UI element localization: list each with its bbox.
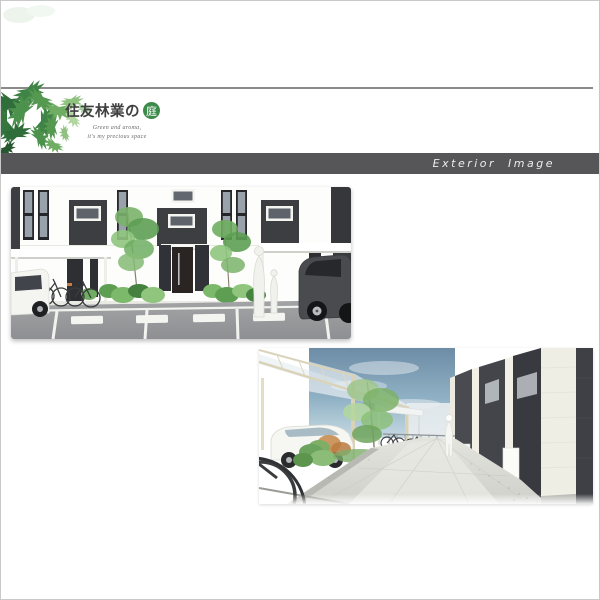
brand-badge: 庭	[143, 102, 160, 119]
rendering-front-elevation	[11, 187, 351, 339]
brochure-page: 住友林業の 庭 Green and aroma, it's my preciou…	[0, 0, 600, 600]
brand-logo: 住友林業の 庭 Green and aroma, it's my preciou…	[65, 100, 175, 141]
dark-car	[299, 255, 351, 323]
brand-name: 住友林業の	[65, 100, 140, 121]
faint-leaf-watermark	[1, 3, 61, 29]
brand-tagline-line1: Green and aroma,	[65, 124, 169, 133]
section-title-bar: Exterior Image	[1, 153, 599, 174]
brand-tagline-line2: it's my precious space	[65, 133, 169, 142]
brand-tagline: Green and aroma, it's my precious space	[65, 124, 169, 141]
white-car	[11, 269, 49, 317]
section-title: Exterior Image	[433, 157, 555, 170]
rendering-walkway-perspective	[259, 348, 593, 504]
